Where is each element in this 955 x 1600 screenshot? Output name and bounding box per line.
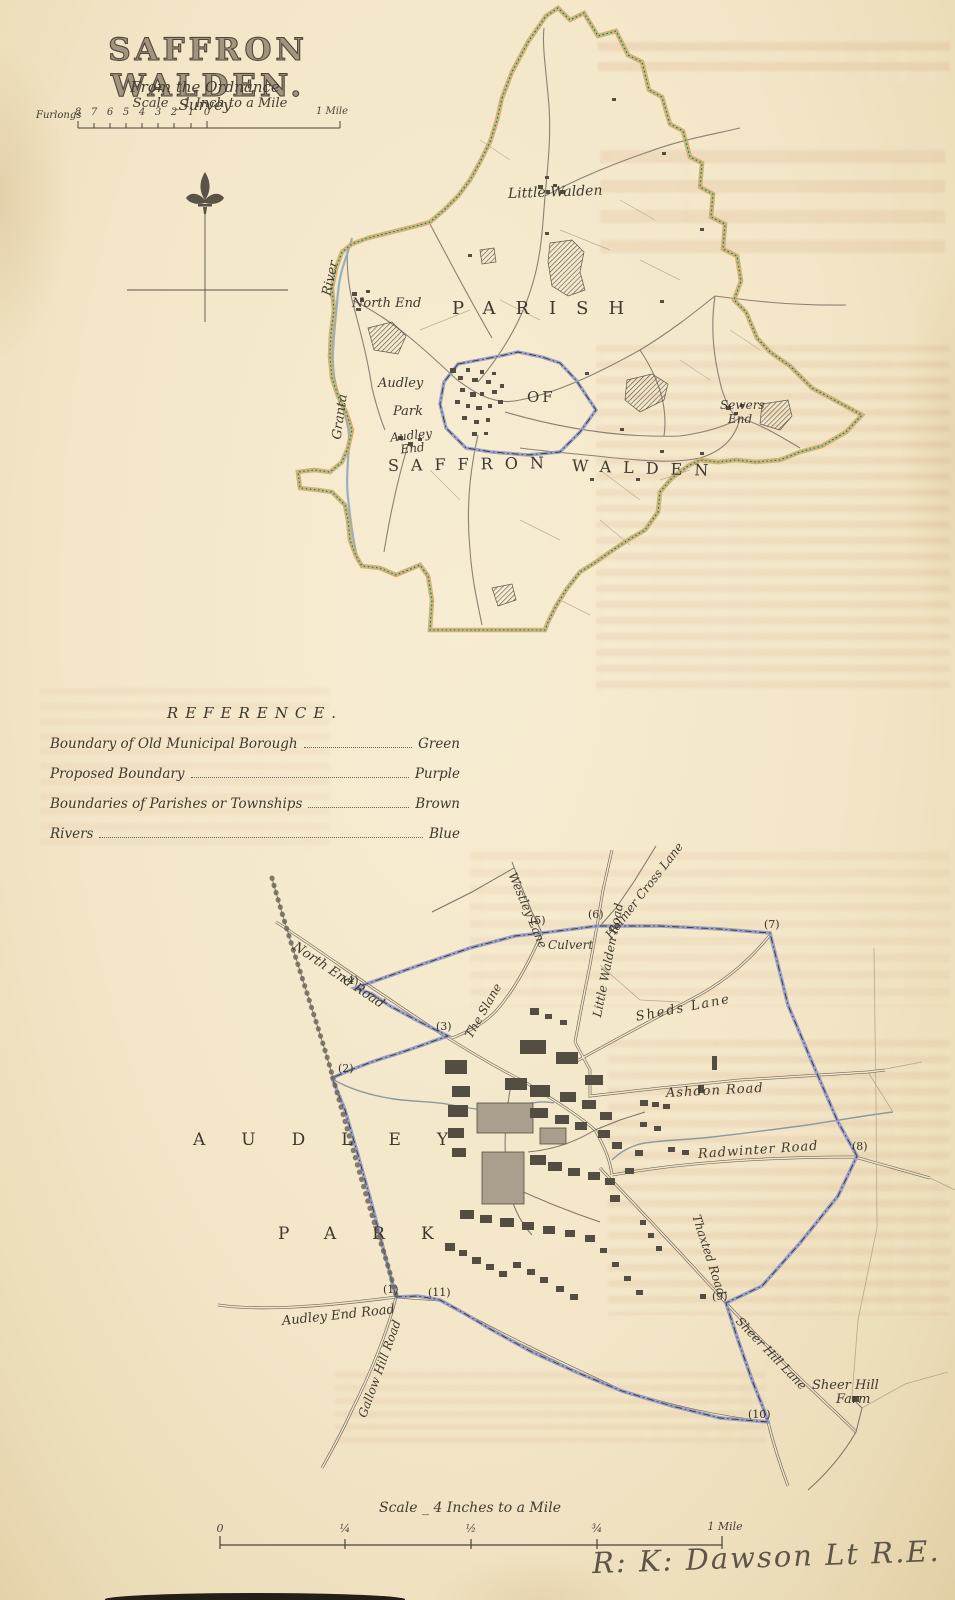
label-audley-end: Audley End [385,427,439,458]
scale-bottom-label: Scale _ 4 Inches to a Mile [330,1500,610,1516]
label-park: Park [393,404,423,419]
scale-top-tick: 1 [188,107,194,118]
boundary-marker: (5) [530,914,546,927]
scale-top-mile: 1 Mile [316,106,348,117]
label-audley-park: PARK [278,1224,470,1244]
reference-row-label: Proposed Boundary [50,766,185,782]
label-sheer-hill-farm: Sheer Hill [812,1378,879,1393]
boundary-marker: (1) [383,1283,399,1296]
town-buildings [445,1008,859,1402]
label-parish: PARISH [452,298,644,319]
leader-line [304,747,412,748]
map-sheet: SAFFRON WALDEN. From the Ordnance Survey… [0,0,955,1600]
reference-row-value: Blue [429,826,460,842]
boundary-marker: (10) [748,1408,771,1421]
scale-top-tick: 2 [171,107,177,118]
scale-top-tick: 8 [75,107,81,118]
reference-row-label: Boundaries of Parishes or Townships [50,796,302,812]
scale-bottom-mile: 1 Mile [707,1520,742,1533]
reference-row: Boundary of Old Municipal BoroughGreen [50,736,460,752]
leader-line [191,777,409,778]
label-of: OF [527,388,556,406]
label-north-end: North End [352,296,421,311]
reference-legend: Boundary of Old Municipal BoroughGreen P… [50,736,460,856]
scale-bottom-tick: 0 [217,1522,224,1535]
reference-row-label: Boundary of Old Municipal Borough [50,736,298,752]
parish-proposed-boundary [440,352,596,455]
scale-bottom-tick: ¼ [340,1522,351,1535]
boundary-marker: (6) [588,908,604,921]
boundary-marker: (2) [338,1062,354,1075]
scale-top-tick: 4 [139,107,145,118]
scale-top-tick: 3 [155,107,161,118]
leader-line [99,837,423,838]
boundary-marker: (7) [764,918,780,931]
boundary-marker: (11) [428,1286,451,1299]
label-culvert: Culvert [548,938,593,952]
reference-row-value: Green [418,736,460,752]
label-sewers-end: End [728,412,752,426]
boundary-marker: (3) [436,1020,452,1033]
reference-row: RiversBlue [50,826,460,842]
parish-field-lines [420,140,760,615]
parish-roads [347,28,846,625]
scale-bottom-tick: ½ [466,1522,477,1535]
parish-boundary [298,8,862,630]
label-little-walden: Little Walden [508,183,603,202]
reference-row-value: Brown [415,796,460,812]
label-sewers-end: Sewers [720,398,765,412]
scale-top-tick: 0 [204,107,210,118]
reference-heading: REFERENCE. [50,704,460,722]
label-audley: Audley [378,376,423,391]
reference-row-label: Rivers [50,826,93,842]
compass [127,172,288,322]
reference-row: Proposed BoundaryPurple [50,766,460,782]
label-saffron: SAFFRON [388,453,556,475]
scale-bottom-tick: ¾ [592,1522,603,1535]
scale-top-tick: 5 [123,107,129,118]
boundary-marker: (4) [343,974,359,987]
label-sheer-hill-farm: Farm [836,1392,870,1407]
reference-row-value: Purple [415,766,460,782]
scale-top-tick: 7 [91,107,97,118]
reference-row: Boundaries of Parishes or TownshipsBrown [50,796,460,812]
fleur-de-lis-icon [186,172,224,214]
boundary-marker: (8) [852,1140,868,1153]
scale-bar-top [78,121,340,128]
scale-top-tick: 6 [107,107,113,118]
label-audley-park: AUDLEY [193,1130,484,1150]
leader-line [308,807,409,808]
boundary-marker: (9) [712,1290,728,1303]
